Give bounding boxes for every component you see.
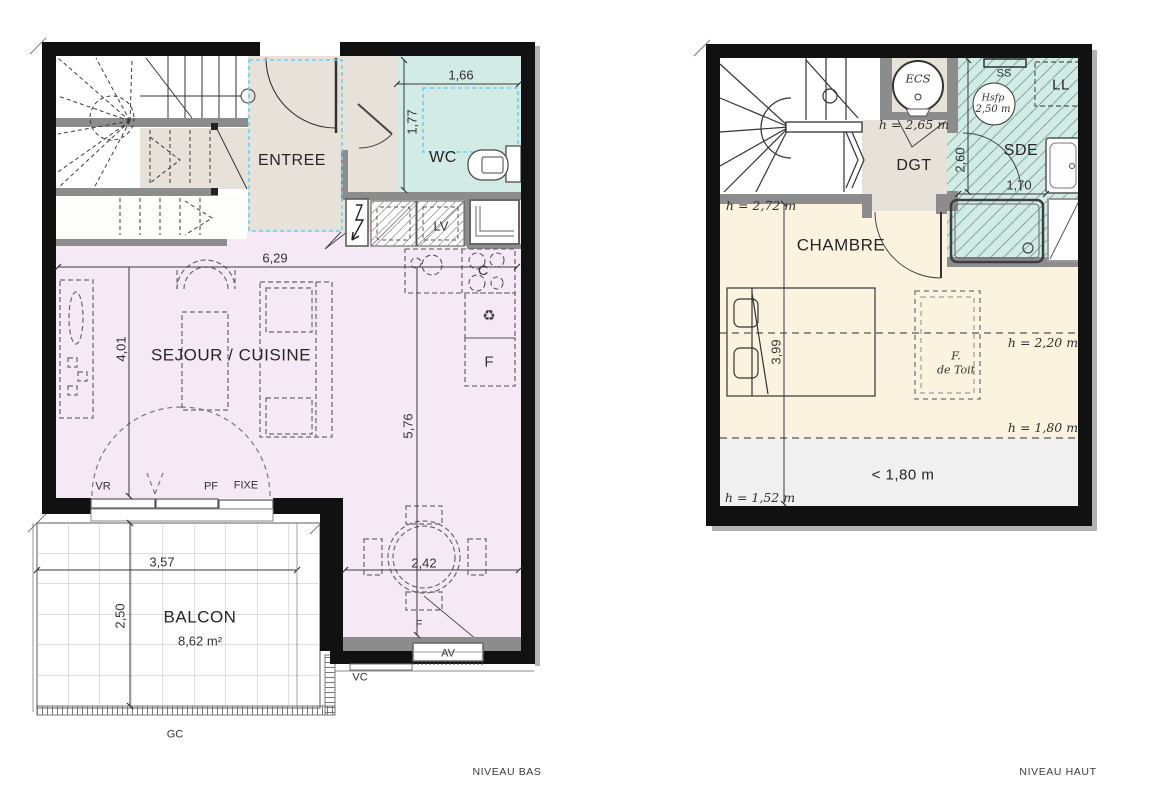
kitchen-appliance-row [346, 199, 519, 246]
window-pf [156, 499, 218, 508]
balcony-railing-bottom [37, 706, 335, 715]
hsfp-circle [973, 83, 1015, 125]
wall-shadow [712, 526, 1097, 531]
wall-shadow [1092, 50, 1097, 530]
window-fixe [219, 500, 273, 509]
understairs-floor [56, 196, 247, 239]
vc-shutter [350, 664, 412, 670]
door-jamb [211, 123, 218, 130]
floorplan-sheet: ENTREE WC SEJOUR / CUISINE BALCON 8,62 m… [0, 0, 1168, 800]
niveau-haut-plan [694, 40, 1097, 531]
washbasin-icon [1046, 138, 1080, 193]
balcony-windows [91, 499, 273, 521]
electrical-panel-icon [346, 199, 368, 246]
window-vr [91, 499, 155, 508]
door-jamb [211, 188, 218, 195]
low-height-zone [720, 438, 1082, 506]
roof-window-right-icon [1048, 199, 1081, 261]
window-sill [91, 509, 273, 521]
wall-shadow [535, 46, 540, 666]
kitchen-sink-icon [470, 200, 519, 244]
dgt-floor [862, 120, 947, 211]
niveau-bas-plan [28, 38, 540, 715]
toilet-icon [468, 146, 521, 182]
balcony [28, 512, 335, 715]
floorplan-drawing [0, 0, 1168, 800]
counter-unit [371, 201, 416, 246]
dishwasher-unit [417, 201, 464, 246]
